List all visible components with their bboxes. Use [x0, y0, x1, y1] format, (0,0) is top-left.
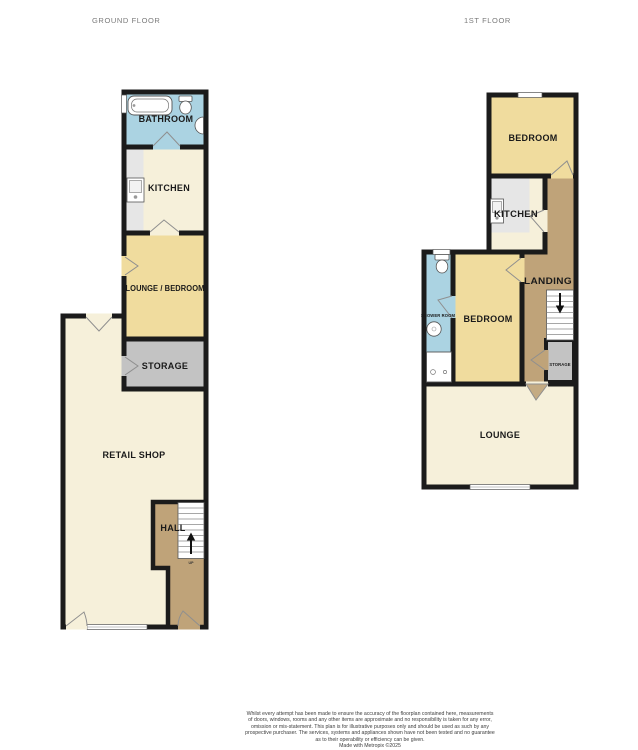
toilet-icon — [435, 255, 449, 274]
floorplan-page: GROUND FLOOR 1ST FLOOR — [0, 0, 638, 750]
door-gap — [150, 231, 179, 236]
door-gap — [122, 356, 127, 376]
window — [518, 93, 542, 98]
door-gap — [122, 256, 127, 276]
stairs — [547, 290, 574, 340]
door-gap — [551, 174, 573, 179]
retail-shop-label: RETAIL SHOP — [103, 450, 166, 460]
bathtub-icon — [128, 96, 172, 115]
ground-floor-plan: BATHROOM KITCHEN LOUNGE / BEDROOM STORAG… — [55, 83, 210, 639]
storage-label: STORAGE — [142, 361, 188, 371]
door-gap — [86, 314, 112, 319]
room-storage — [546, 340, 574, 382]
toilet-icon — [179, 96, 192, 114]
landing-label: LANDING — [524, 276, 572, 286]
door-gap — [543, 210, 548, 232]
first-floor-plan: BEDROOM KITCHEN LANDING SHOWER ROOM BEDR… — [418, 83, 585, 495]
door-gap — [153, 145, 180, 150]
door-gap — [544, 350, 549, 370]
window — [433, 250, 450, 255]
storage-label: STORAGE — [549, 362, 570, 367]
bedroom-label: BEDROOM — [463, 314, 512, 324]
ground-floor-title: GROUND FLOOR — [92, 16, 160, 25]
door-gap — [66, 625, 87, 630]
hall-label: HALL — [160, 523, 185, 533]
lounge-label: LOUNGE — [480, 430, 520, 440]
shower-room-label: SHOWER ROOM — [421, 313, 456, 318]
kitchen-label: KITCHEN — [148, 183, 190, 193]
first-floor-title: 1ST FLOOR — [464, 16, 511, 25]
kitchen-label: KITCHEN — [494, 209, 538, 219]
bathroom-label: BATHROOM — [139, 114, 194, 124]
shower-tray-icon — [427, 352, 452, 382]
disclaimer-credit: Made with Metropix ©2025 — [180, 743, 560, 749]
kitchen-sink-icon — [127, 178, 144, 202]
window — [122, 95, 127, 113]
up-label: UP — [189, 561, 195, 565]
disclaimer: Whilst every attempt has been made to en… — [180, 711, 560, 749]
lounge-bedroom-label: LOUNGE / BEDROOM — [126, 284, 205, 293]
door-gap — [178, 625, 200, 630]
basin-icon — [427, 322, 441, 336]
bedroom-top-label: BEDROOM — [508, 133, 557, 143]
